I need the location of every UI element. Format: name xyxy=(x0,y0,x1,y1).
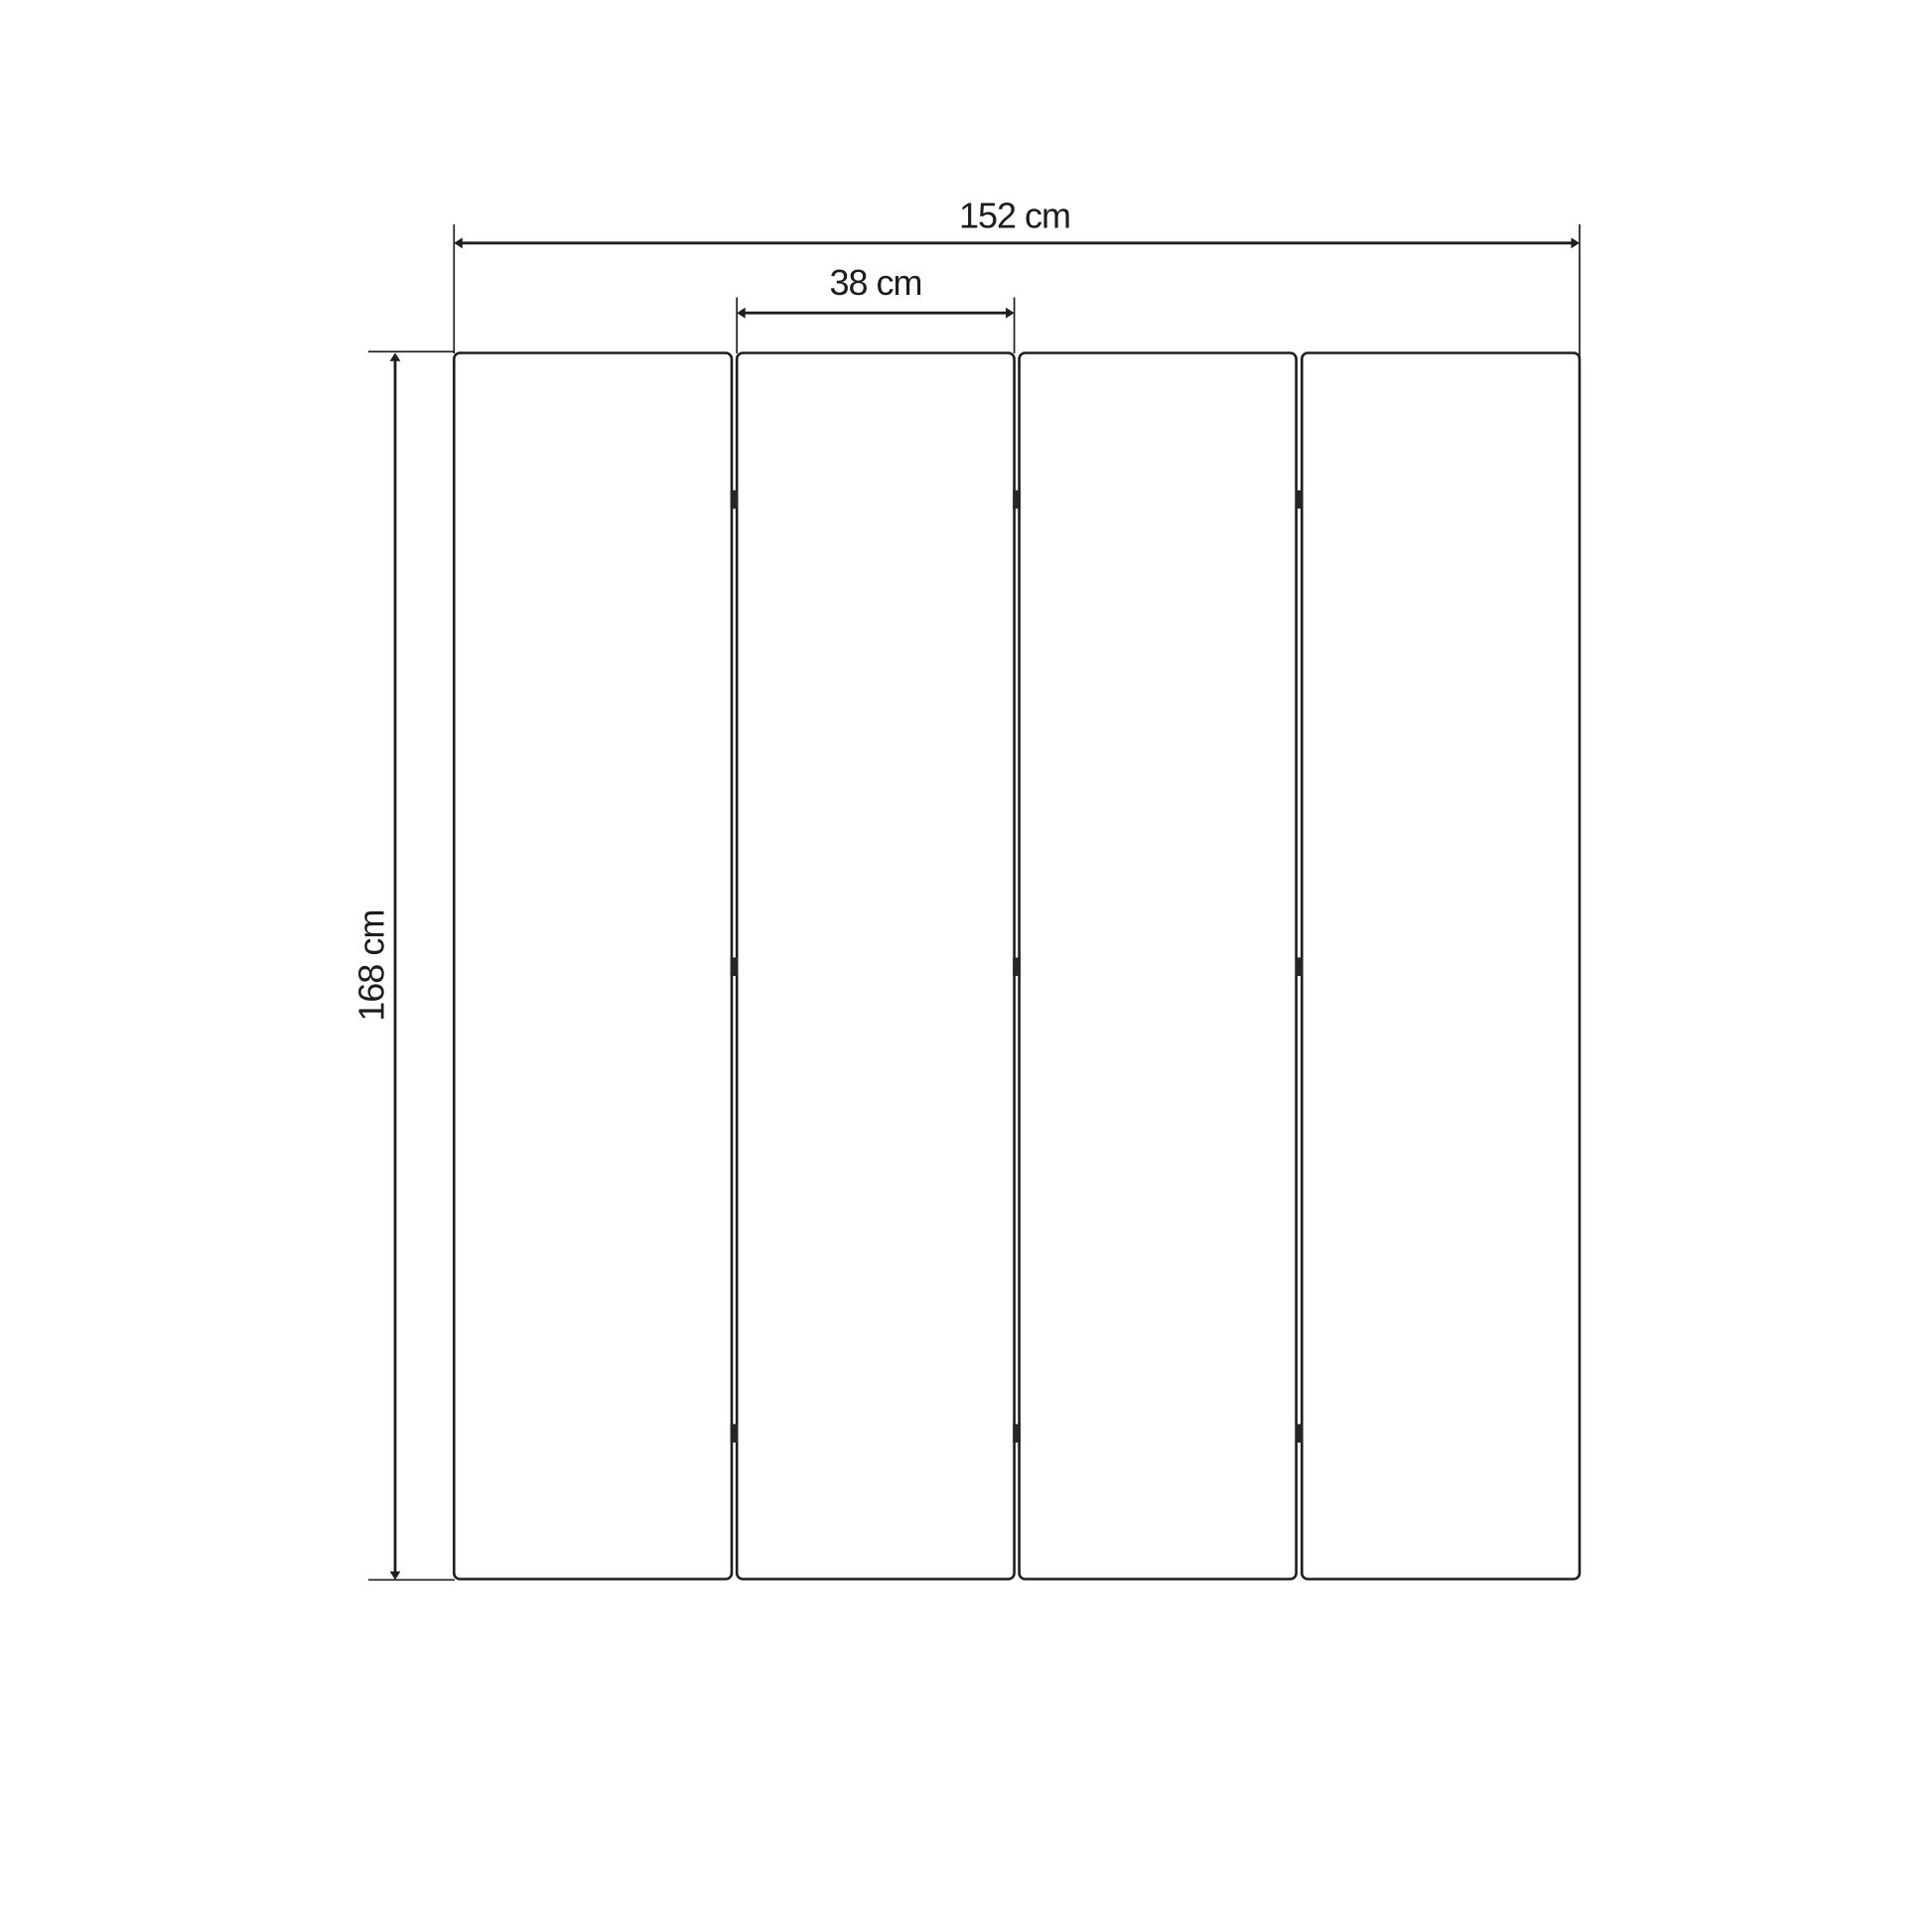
svg-text:38 cm: 38 cm xyxy=(829,262,921,303)
svg-text:152 cm: 152 cm xyxy=(959,196,1070,236)
svg-text:168 cm: 168 cm xyxy=(351,910,392,1022)
